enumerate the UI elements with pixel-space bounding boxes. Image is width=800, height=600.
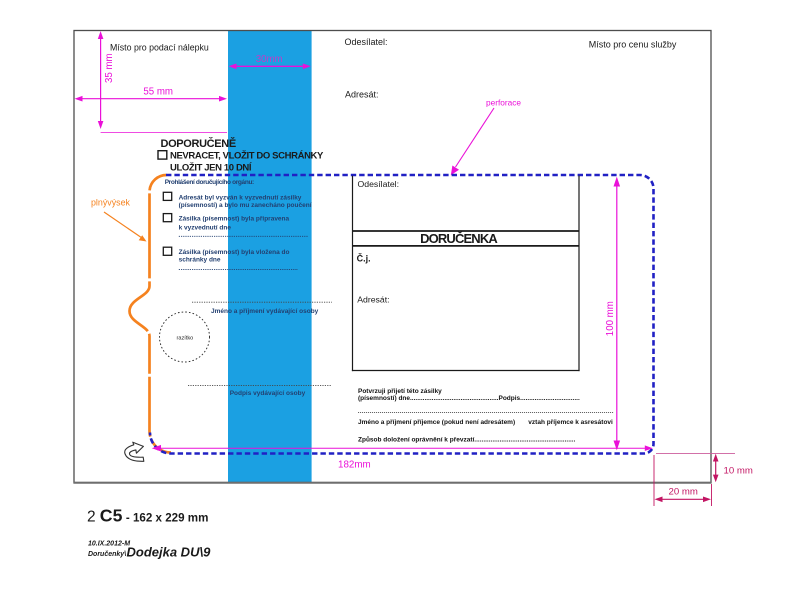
svg-text:plnývýsek: plnývýsek [91,198,131,208]
svg-text:razítko: razítko [177,335,194,341]
svg-text:2: 2 [87,509,96,526]
svg-text:100 mm: 100 mm [605,301,616,336]
svg-text:10.IX.2012-M: 10.IX.2012-M [88,540,130,547]
svg-text:55 mm: 55 mm [143,87,173,98]
svg-text:Dodejka DU\9: Dodejka DU\9 [127,545,212,560]
svg-text:Místo pro cenu služby: Místo pro cenu služby [589,40,677,50]
svg-text:Odesílatel:: Odesílatel: [358,179,400,189]
svg-text:Adresát byl vyzván k vyzvednut: Adresát byl vyzván k vyzvednutí zásilky [179,194,302,201]
svg-text:k vyzvednutí dne: k vyzvednutí dne [179,224,232,231]
svg-text:DORUČENKA: DORUČENKA [420,231,498,246]
svg-text:ULOŽIT JEN 10 DNÍ: ULOŽIT JEN 10 DNÍ [170,161,252,173]
svg-text:Jméno a příjmení vydávající os: Jméno a příjmení vydávající osoby [211,308,319,315]
svg-text:Prohlášení doručujícího orgánu: Prohlášení doručujícího orgánu: [165,179,254,186]
svg-text:DOPORUČENĚ: DOPORUČENĚ [161,137,236,150]
svg-text:C5: C5 [100,506,123,526]
svg-text:20 mm: 20 mm [669,486,698,497]
svg-text:(písemností) dne.............: (písemností) dne........................… [358,395,580,402]
svg-text:Odesílatel:: Odesílatel: [345,37,388,47]
svg-text:(písemností) a bylo mu zanechá: (písemností) a bylo mu zanecháno poučení [179,202,312,209]
svg-text:Zásilka (písemnost) byla připr: Zásilka (písemnost) byla připravena [179,216,290,223]
svg-text:35 mm: 35 mm [104,53,115,83]
svg-text:vztah příjemce k asresátovi: vztah příjemce k asresátovi [528,419,613,426]
svg-text:- 162 x 229 mm: - 162 x 229 mm [126,512,208,525]
svg-text:Doručenky\: Doručenky\ [88,551,126,558]
svg-text:Adresát:: Adresát: [357,295,389,305]
svg-text:182mm: 182mm [338,460,371,471]
svg-text:Adresát:: Adresát: [345,90,379,100]
svg-text:Č.j.: Č.j. [357,253,371,264]
svg-text:Podpis vydávající osoby: Podpis vydávající osoby [230,390,306,397]
svg-text:Jméno a příjmení příjemce (pok: Jméno a příjmení příjemce (pokud není ad… [358,419,515,426]
svg-text:Místo pro podací nálepku: Místo pro podací nálepku [110,42,209,52]
svg-text:30mm: 30mm [256,54,283,65]
svg-text:perforace: perforace [486,97,521,107]
svg-text:schránky dne: schránky dne [179,257,221,264]
svg-text:Způsob doložení oprávnění k př: Způsob doložení oprávnění k převzatí....… [358,436,576,444]
svg-text:10 mm: 10 mm [724,465,753,476]
svg-text:Zásilka (písemnost) byla vlože: Zásilka (písemnost) byla vložena do [179,249,290,256]
svg-text:NEVRACET, VLOŽIT DO SCHRÁNKY: NEVRACET, VLOŽIT DO SCHRÁNKY [170,150,324,162]
